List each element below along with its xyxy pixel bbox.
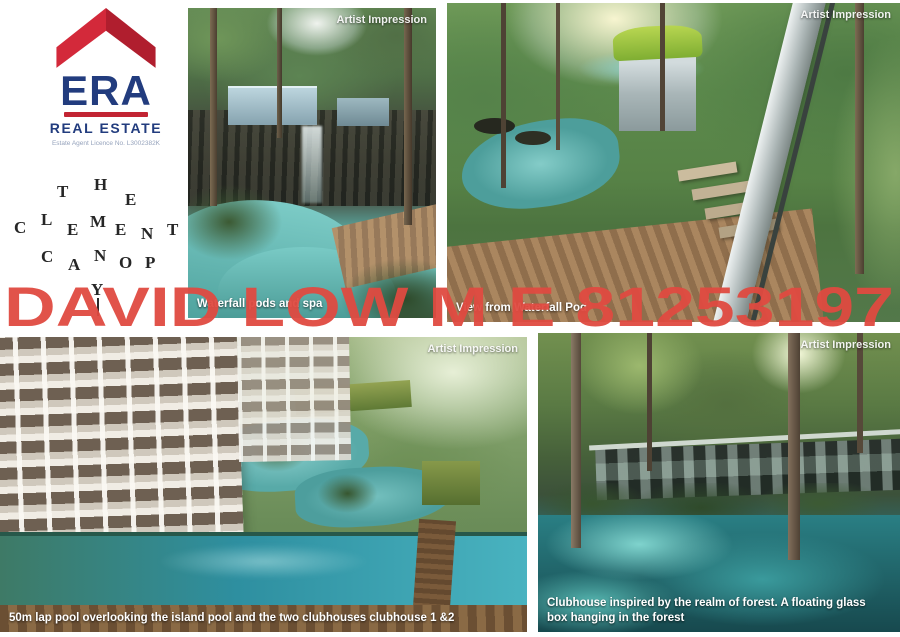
canopy-letter: L bbox=[41, 210, 52, 230]
tree-trunk bbox=[647, 333, 652, 471]
canopy-letter: N bbox=[141, 224, 153, 244]
canopy-letter: T bbox=[167, 220, 178, 240]
image-caption: Waterfall pods and spa bbox=[197, 297, 322, 312]
tree-trunk bbox=[855, 3, 864, 274]
artist-impression-badge: Artist Impression bbox=[337, 14, 427, 26]
gallery-image-forest-clubhouse: Artist Impression Clubhouse inspired by … bbox=[538, 333, 900, 632]
canopy-letter: N bbox=[94, 246, 106, 266]
gallery-image-waterfall-pods: Artist Impression Waterfall pods and spa bbox=[188, 8, 436, 318]
canopy-letter: A bbox=[68, 255, 80, 275]
glass-pod bbox=[337, 98, 389, 126]
era-house-icon bbox=[54, 8, 158, 72]
image-caption: Clubhouse inspired by the realm of fores… bbox=[547, 596, 886, 626]
tree-trunk bbox=[571, 333, 581, 548]
canopy-letter: H bbox=[94, 175, 107, 195]
tree-trunk bbox=[556, 3, 560, 150]
lounge-pod bbox=[515, 131, 551, 145]
lounge-pod bbox=[474, 118, 515, 134]
tree-trunk bbox=[788, 333, 800, 560]
clement-canopy-logo: T H E C L E M E N T C A N O P Y bbox=[8, 162, 190, 314]
canopy-letter: P bbox=[145, 253, 155, 273]
gallery-image-lap-pool: Artist Impression 50m lap pool overlooki… bbox=[0, 337, 527, 632]
artist-impression-badge: Artist Impression bbox=[428, 343, 518, 355]
canopy-letter: E bbox=[67, 220, 78, 240]
clubhouse-green-roof bbox=[422, 461, 480, 505]
canopy-letter: C bbox=[14, 218, 26, 238]
garden-pavilion bbox=[619, 48, 696, 131]
glass-pod bbox=[228, 86, 317, 125]
canopy-letter: E bbox=[125, 190, 136, 210]
condo-tower bbox=[237, 337, 351, 462]
canopy-letter: E bbox=[115, 220, 126, 240]
tree-trunk bbox=[210, 8, 217, 206]
waterfall-stream bbox=[302, 126, 322, 204]
era-logo-rule bbox=[64, 112, 148, 117]
canopy-letter: C bbox=[41, 247, 53, 267]
tree-trunk bbox=[404, 8, 412, 225]
era-logo-name: ERA bbox=[60, 74, 152, 108]
era-logo-tagline: REAL ESTATE bbox=[50, 120, 163, 136]
tree-trunk bbox=[660, 3, 665, 131]
flyer-page: ERA REAL ESTATE Estate Agent Licence No.… bbox=[0, 0, 900, 637]
gallery-image-view-from-pod: Artist Impression View from Waterfall Po… bbox=[447, 3, 900, 322]
canopy-y-stem bbox=[97, 298, 99, 316]
pool-bridge bbox=[413, 519, 456, 610]
image-caption: View from Waterfall Pod bbox=[456, 301, 587, 316]
canopy-letter: Y bbox=[91, 280, 103, 300]
pool-island-tree bbox=[316, 473, 379, 514]
artist-impression-badge: Artist Impression bbox=[801, 9, 891, 21]
image-caption: 50m lap pool overlooking the island pool… bbox=[9, 611, 454, 626]
tree-trunk bbox=[501, 3, 506, 188]
canopy-letter: O bbox=[119, 253, 132, 273]
era-logo: ERA REAL ESTATE Estate Agent Licence No.… bbox=[38, 8, 174, 158]
pool-glare bbox=[158, 544, 369, 579]
era-licence-text: Estate Agent Licence No. L3002382K bbox=[52, 140, 160, 147]
tree-trunk bbox=[277, 8, 282, 138]
canopy-letter: M bbox=[90, 212, 106, 232]
canopy-letter: T bbox=[57, 182, 68, 202]
condo-tower bbox=[0, 337, 244, 543]
artist-impression-badge: Artist Impression bbox=[801, 339, 891, 351]
